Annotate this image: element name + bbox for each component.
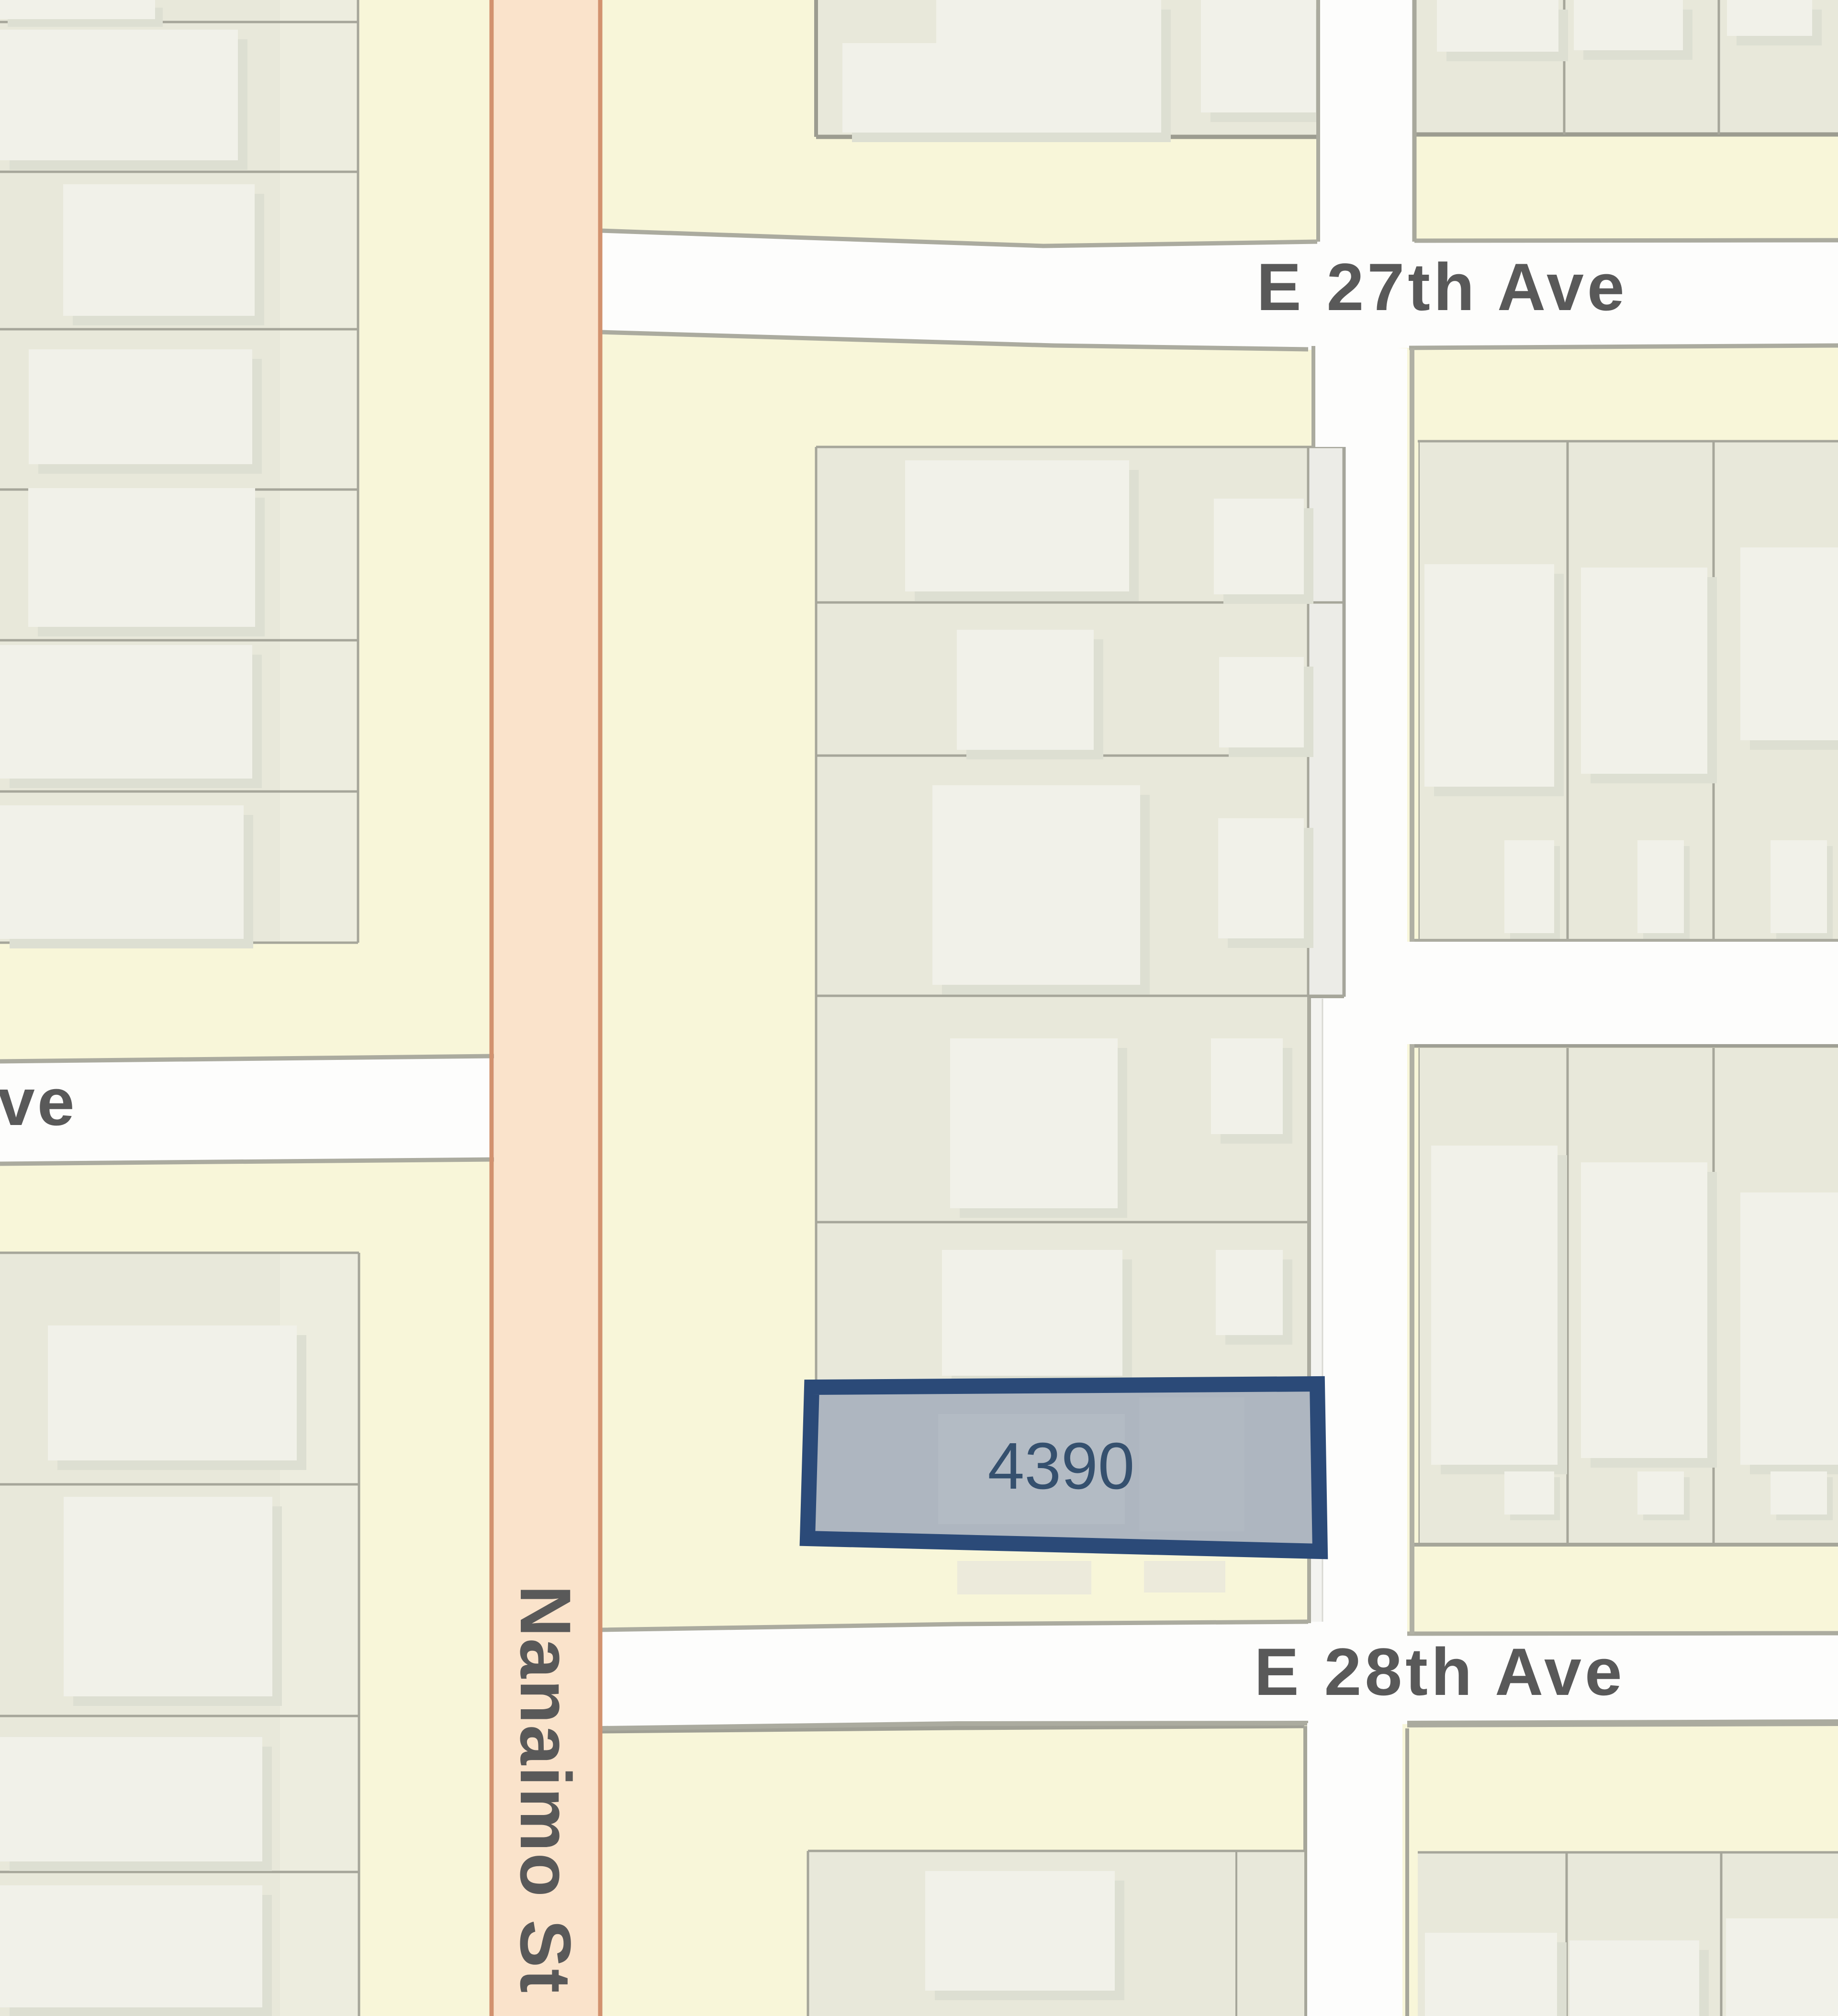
- svg-text:Ave: Ave: [0, 1064, 77, 1139]
- svg-text:4390: 4390: [988, 1429, 1135, 1503]
- svg-text:E 28th Ave: E 28th Ave: [1254, 1634, 1625, 1709]
- svg-text:E 27th Ave: E 27th Ave: [1256, 249, 1627, 324]
- svg-text:Nanaimo St: Nanaimo St: [505, 1585, 586, 1994]
